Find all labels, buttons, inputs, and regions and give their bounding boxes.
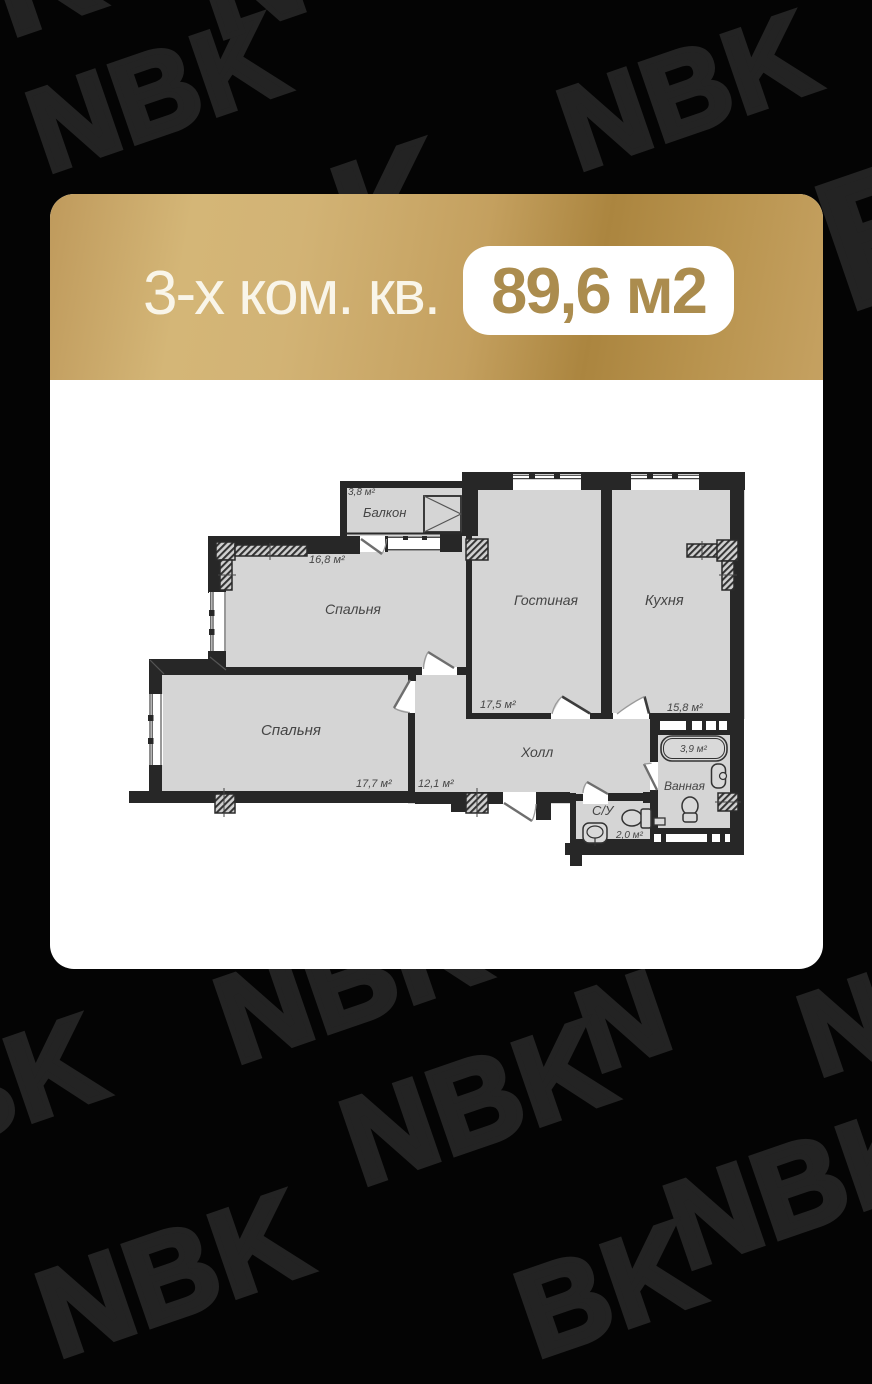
svg-text:17,7 м²: 17,7 м² — [356, 778, 392, 790]
svg-text:Кухня: Кухня — [645, 593, 684, 609]
svg-text:2,0 м²: 2,0 м² — [615, 830, 644, 841]
svg-text:Гостиная: Гостиная — [514, 592, 579, 608]
svg-text:Холл: Холл — [520, 744, 553, 760]
svg-text:Спальня: Спальня — [325, 601, 381, 617]
svg-text:12,1 м²: 12,1 м² — [418, 778, 454, 790]
svg-text:3,8 м²: 3,8 м² — [348, 487, 376, 498]
svg-text:С/У: С/У — [592, 803, 615, 818]
svg-text:Балкон: Балкон — [363, 505, 406, 520]
svg-text:3,9 м²: 3,9 м² — [680, 744, 708, 755]
svg-text:Ванная: Ванная — [664, 779, 706, 793]
svg-text:15,8 м²: 15,8 м² — [667, 702, 703, 714]
svg-text:16,8 м²: 16,8 м² — [309, 554, 345, 566]
svg-text:17,5 м²: 17,5 м² — [480, 699, 516, 711]
svg-text:Спальня: Спальня — [261, 722, 321, 739]
